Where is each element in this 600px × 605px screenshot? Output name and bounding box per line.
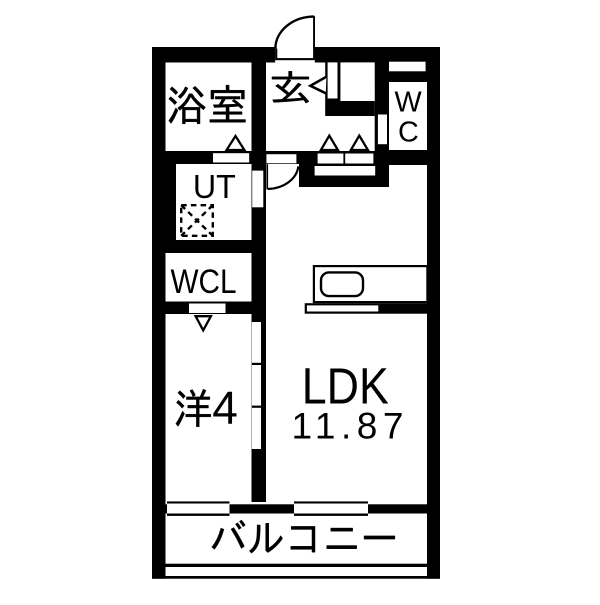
svg-text:WCL: WCL <box>171 263 237 301</box>
svg-text:C: C <box>398 117 419 149</box>
svg-text:4: 4 <box>212 381 238 433</box>
svg-text:W: W <box>395 87 423 119</box>
svg-text:UT: UT <box>193 168 236 205</box>
svg-text:11.87: 11.87 <box>292 405 404 446</box>
